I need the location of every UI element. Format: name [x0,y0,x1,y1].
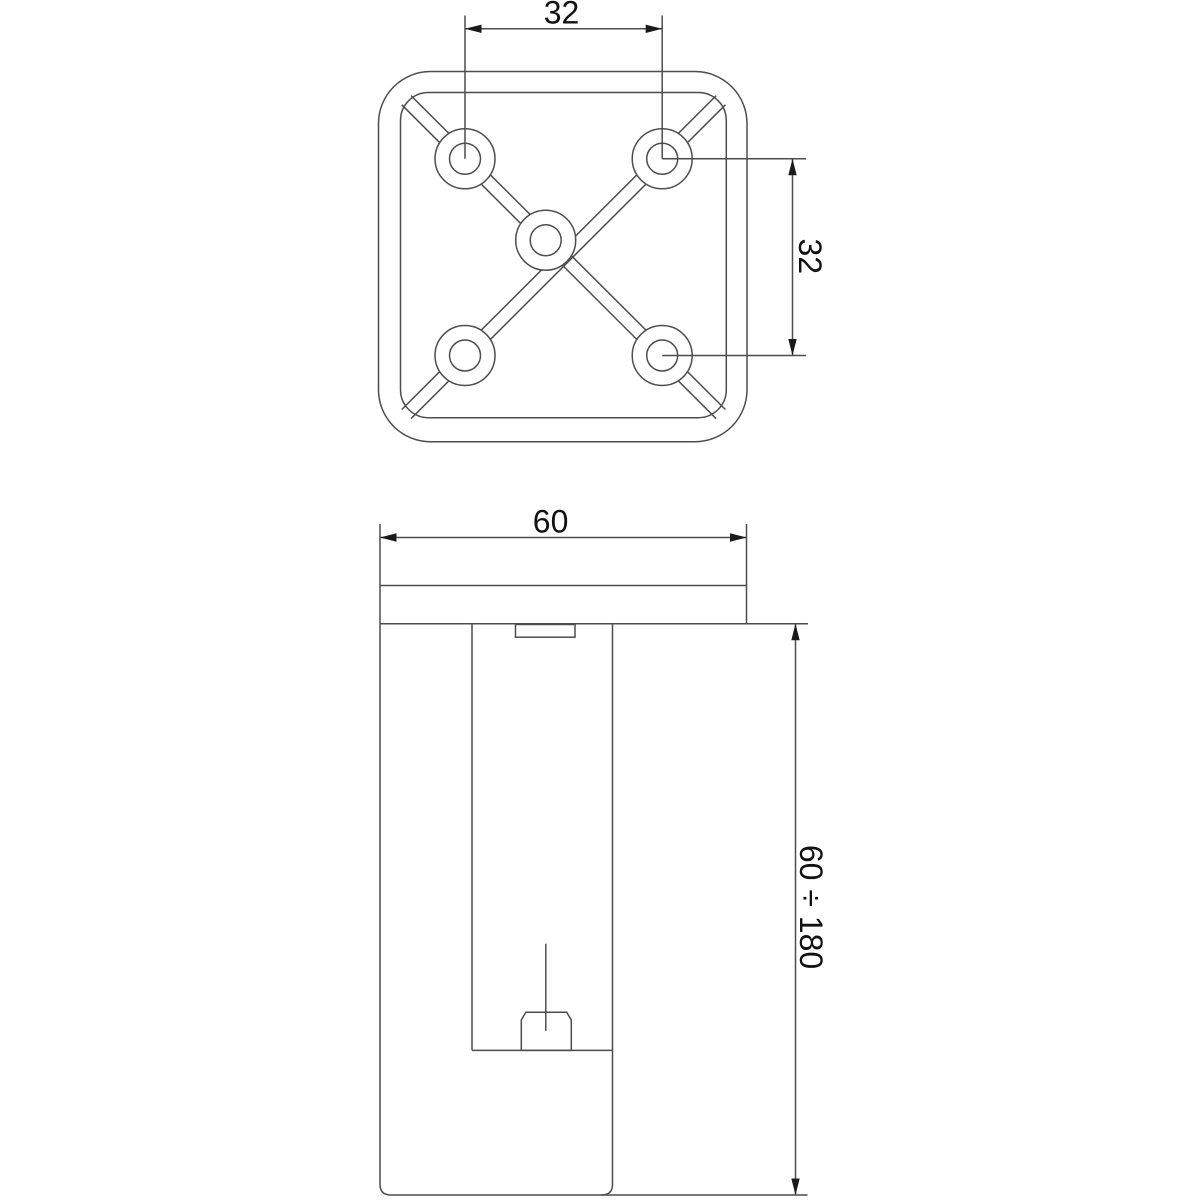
svg-text:32: 32 [544,0,580,31]
svg-text:60: 60 [533,504,569,540]
svg-text:32: 32 [792,239,828,275]
svg-text:60 ÷ 180: 60 ÷ 180 [793,845,829,969]
